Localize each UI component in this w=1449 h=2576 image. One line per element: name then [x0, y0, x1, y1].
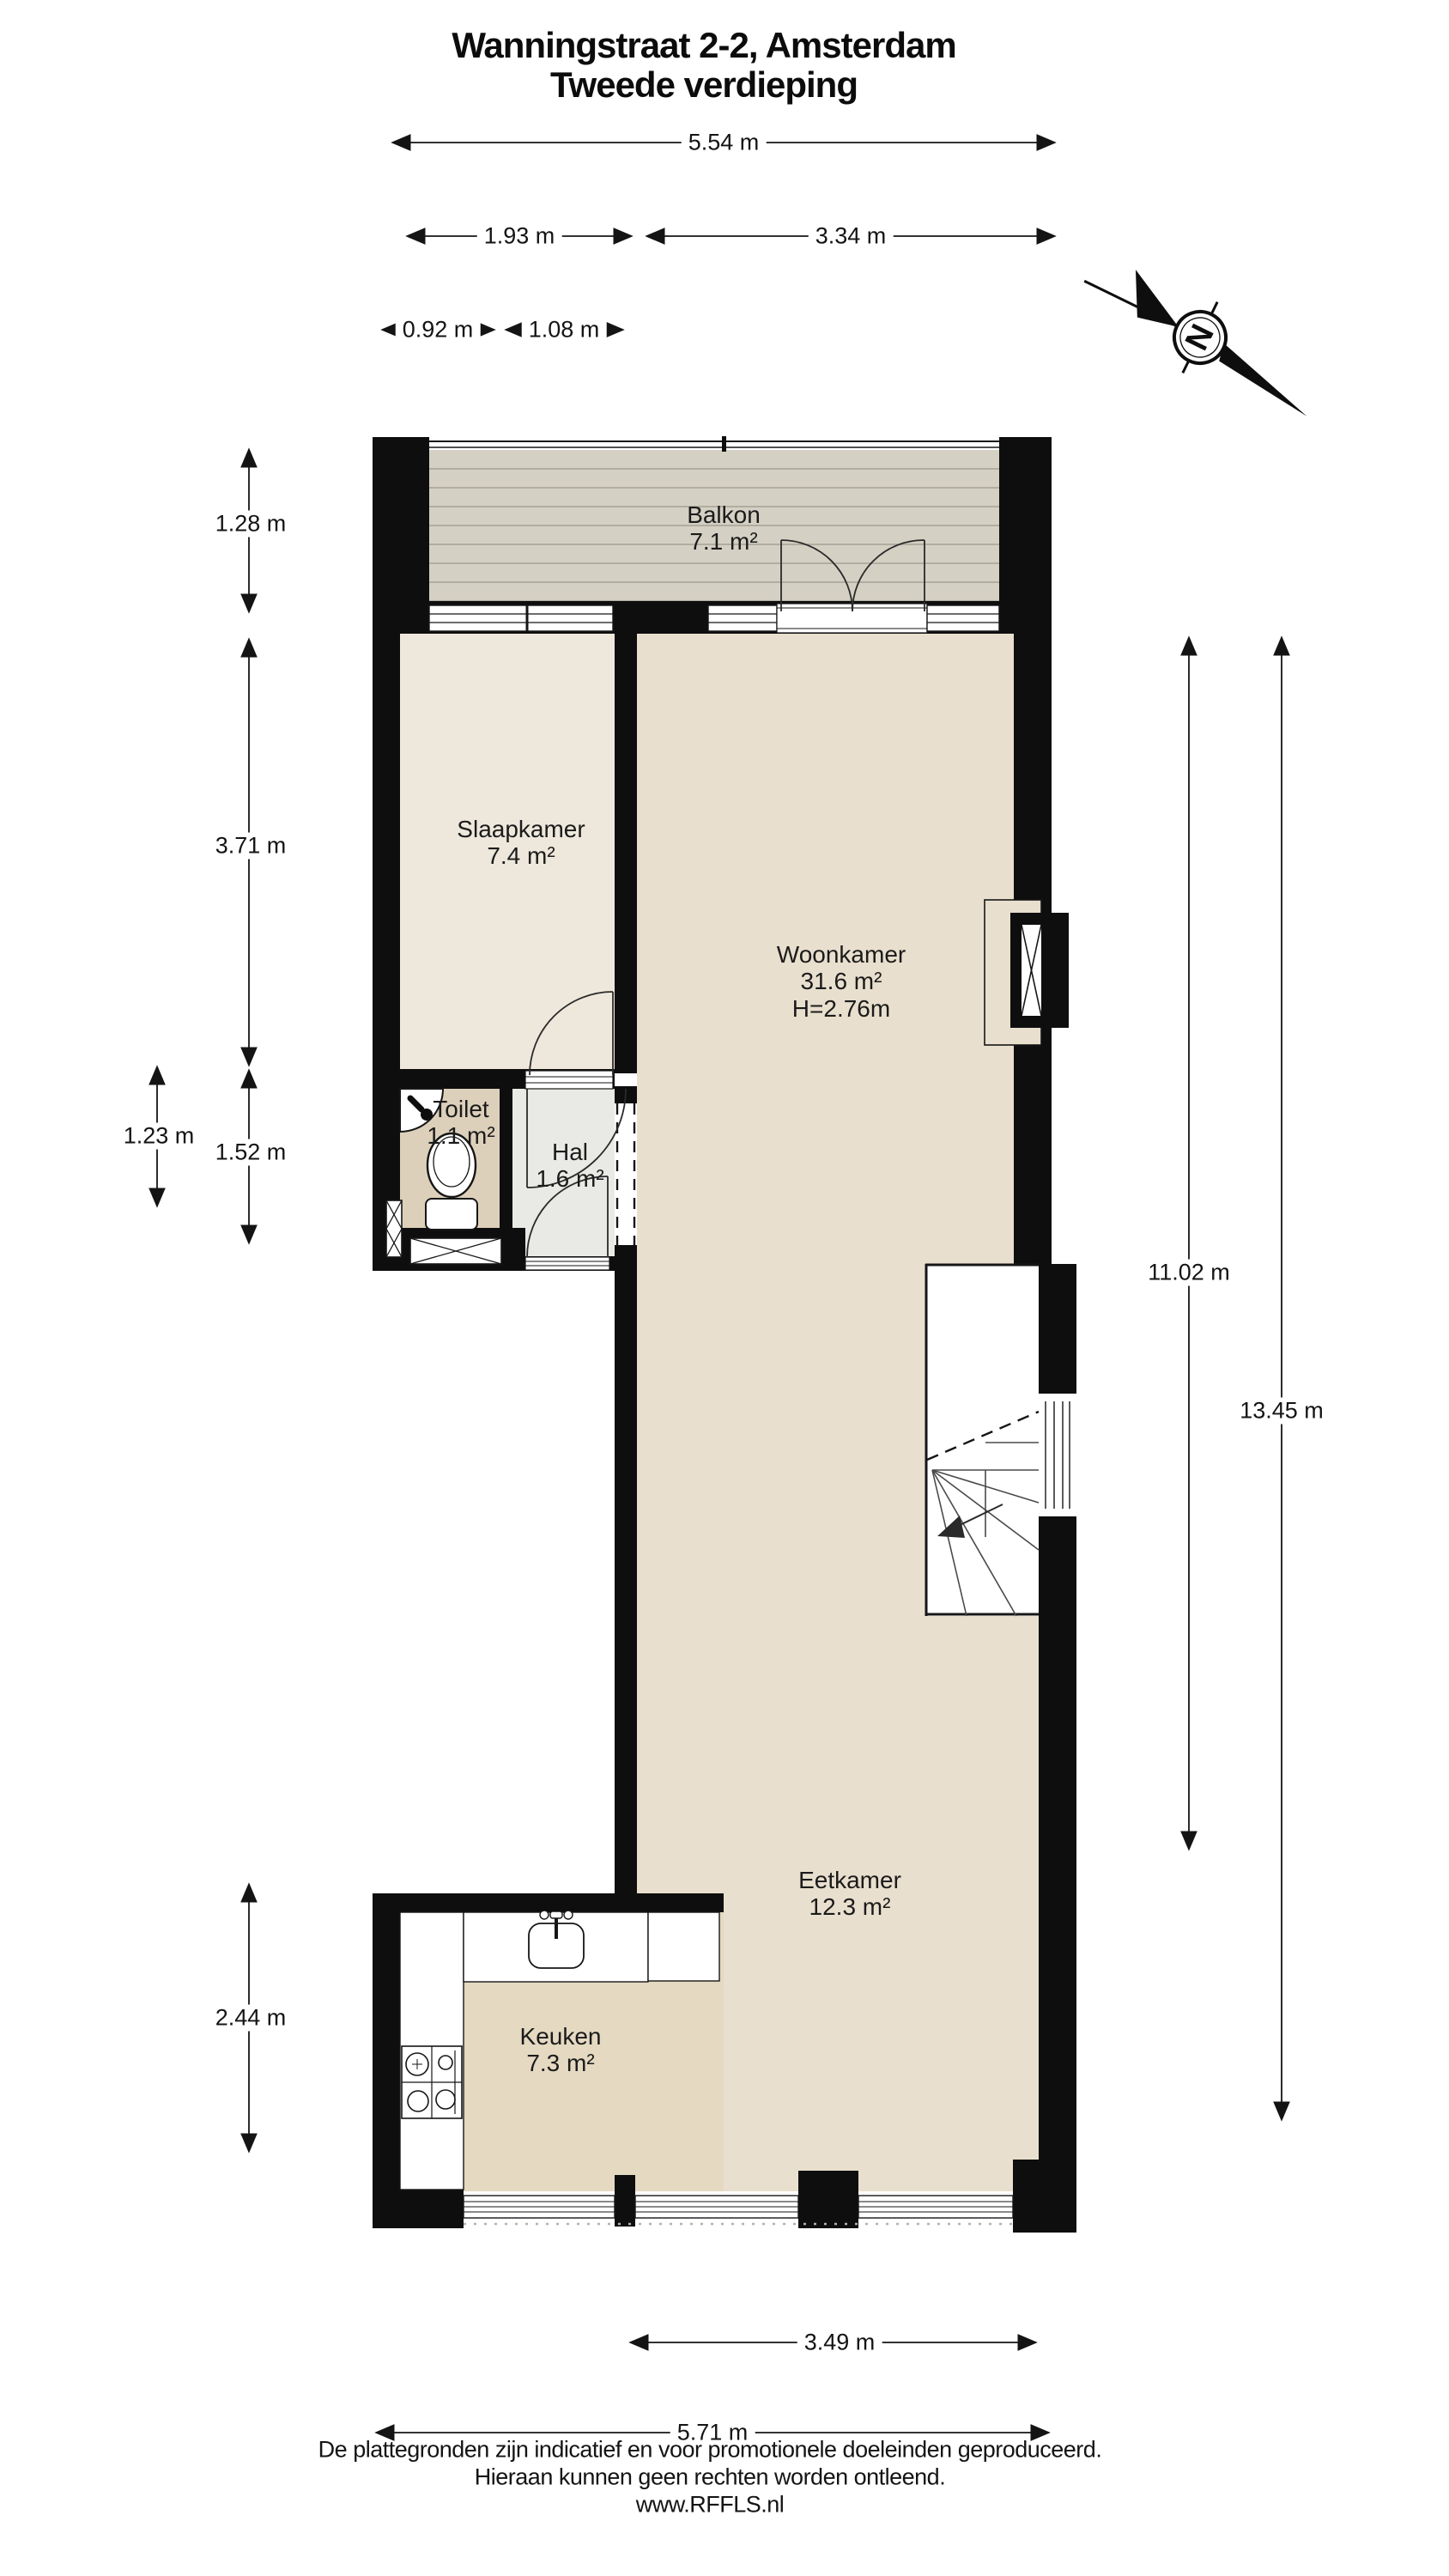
room-label-hal: Hal 1.6 m²	[536, 1139, 603, 1192]
balkon-railing	[429, 436, 999, 452]
slaapkamer-area: 7.4 m²	[457, 842, 585, 869]
room-label-keuken: Keuken 7.3 m²	[520, 2023, 602, 2076]
keuken-name: Keuken	[520, 2023, 602, 2050]
room-label-woonkamer: Woonkamer 31.6 m² H=2.76m	[777, 941, 906, 1022]
room-label-eetkamer: Eetkamer 12.3 m²	[798, 1867, 901, 1920]
room-label-slaapkamer: Slaapkamer 7.4 m²	[457, 816, 585, 869]
wall-balkon-post-right	[999, 437, 1052, 634]
toilet-name: Toilet	[427, 1096, 494, 1122]
dim-label-1-08: 1.08 m	[522, 317, 607, 343]
wall-bottom-mullion-2	[798, 2171, 858, 2228]
closet-tall-icon	[386, 1200, 402, 1257]
closet-wide-icon	[410, 1238, 501, 1264]
wall-keuken-top	[373, 1893, 724, 1912]
footer-website: www.RFFLS.nl	[636, 2492, 785, 2518]
keuken-area: 7.3 m²	[520, 2050, 602, 2076]
counter-cabinet	[648, 1912, 719, 1981]
hal-door-threshold	[525, 1257, 609, 1270]
dim-label-3-71: 3.71 m	[209, 833, 294, 860]
balkon-name: Balkon	[687, 501, 761, 528]
woonkamer-floor	[637, 605, 1014, 1264]
hal-area: 1.6 m²	[536, 1165, 603, 1192]
wall-right-mid	[1039, 1264, 1076, 1401]
hob-icon	[402, 2046, 462, 2118]
wall-left-upper	[373, 634, 400, 1271]
dim-label-0-92: 0.92 m	[396, 317, 481, 343]
hal-name: Hal	[536, 1139, 603, 1165]
dim-label-3-34: 3.34 m	[809, 223, 894, 250]
hal-open-passage	[615, 1103, 637, 1245]
stairwell	[925, 1264, 1039, 1616]
eetkamer-name: Eetkamer	[798, 1867, 901, 1893]
woonkamer-height: H=2.76m	[777, 995, 906, 1022]
dim-label-2-44: 2.44 m	[209, 2005, 294, 2032]
eetkamer-area: 12.3 m²	[798, 1893, 901, 1920]
woonkamer-window-right	[927, 605, 999, 631]
chimney	[985, 900, 1069, 1045]
slaapkamer-door-threshold	[525, 1071, 613, 1089]
woonkamer-area: 31.6 m²	[777, 968, 906, 994]
wall-corner-bottom-right	[1013, 2160, 1076, 2233]
wall-slaap-woon	[615, 611, 637, 1073]
room-label-balkon: Balkon 7.1 m²	[687, 501, 761, 555]
wall-bottom-mullion-1	[615, 2175, 635, 2227]
railing-post	[722, 436, 726, 452]
floorplan-drawing: N	[0, 0, 1449, 2576]
wall-left-keuken	[373, 1912, 400, 2226]
toilet-area: 1.1 m²	[427, 1122, 494, 1149]
footer-disclaimer-2: Hieraan kunnen geen rechten worden ontle…	[475, 2464, 945, 2491]
dim-label-1-52: 1.52 m	[209, 1139, 294, 1166]
wall-west-spine	[615, 1245, 637, 1912]
compass-east-blade	[1211, 343, 1319, 416]
floorplan-page: Wanningstraat 2-2, Amsterdam Tweede verd…	[0, 0, 1449, 2576]
compass-rose-icon: N	[1067, 246, 1335, 430]
bottom-window-3	[858, 2196, 1013, 2218]
dim-label-5-54: 5.54 m	[682, 130, 767, 156]
dim-label-1-28: 1.28 m	[209, 511, 294, 538]
dim-label-1-23: 1.23 m	[117, 1123, 202, 1150]
dim-label-1-93: 1.93 m	[477, 223, 562, 250]
bottom-window-1	[464, 2196, 615, 2218]
woonkamer-window-left	[708, 605, 777, 631]
bottom-window-2	[635, 2196, 798, 2218]
woonkamer-name: Woonkamer	[777, 941, 906, 968]
dim-label-13-45: 13.45 m	[1233, 1398, 1331, 1425]
wall-right-lower	[1039, 1509, 1076, 2196]
wall-corner-bottom-left	[373, 2185, 464, 2228]
dim-label-11-02: 11.02 m	[1141, 1260, 1237, 1286]
dim-label-3-49: 3.49 m	[797, 2330, 882, 2356]
slaapkamer-name: Slaapkamer	[457, 816, 585, 842]
room-label-toilet: Toilet 1.1 m²	[427, 1096, 494, 1149]
stairwell-window	[1039, 1394, 1076, 1516]
balkon-area: 7.1 m²	[687, 528, 761, 555]
slaapkamer-window	[429, 605, 613, 631]
footer-disclaimer-1: De plattegronden zijn indicatief en voor…	[318, 2437, 1102, 2464]
